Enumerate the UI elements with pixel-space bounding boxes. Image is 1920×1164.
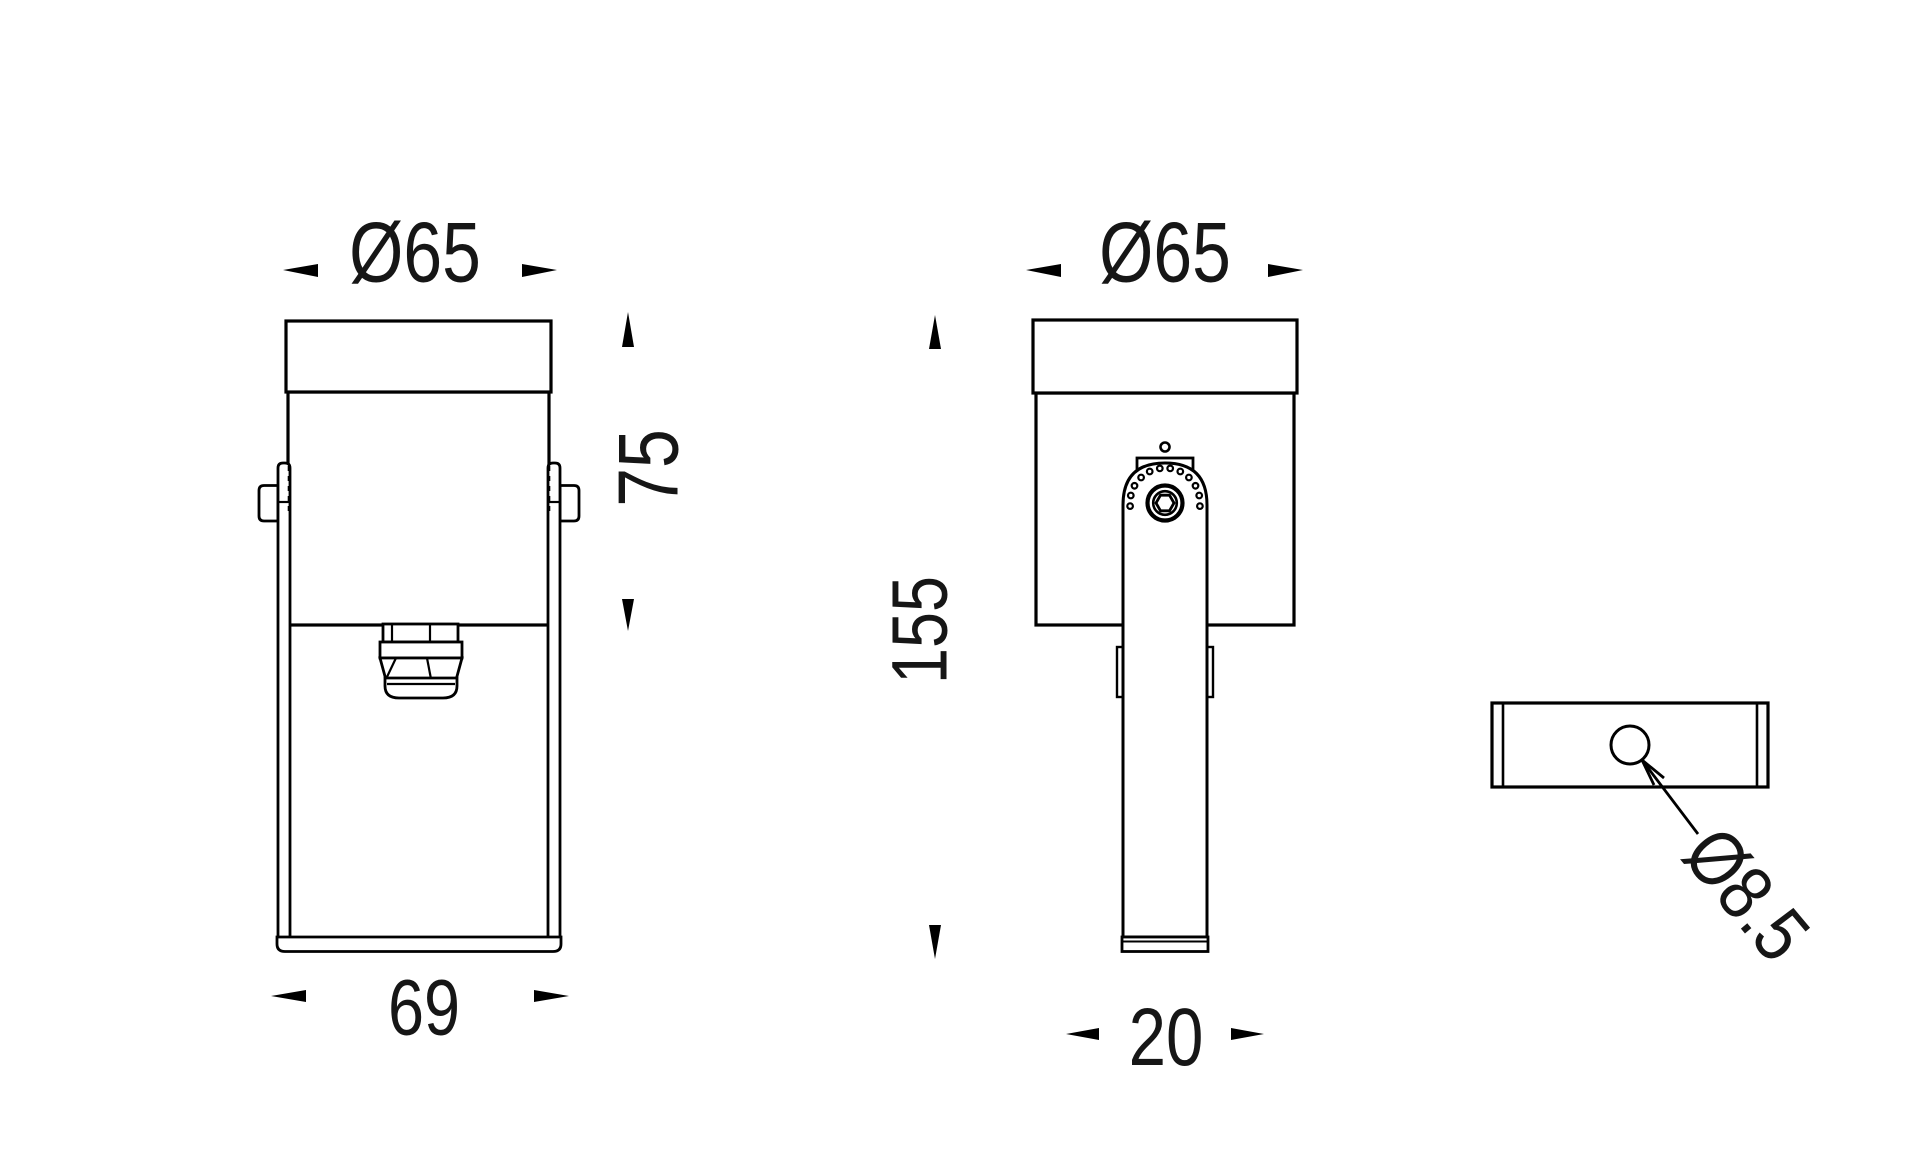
arrow-front-dia-left [283,264,318,277]
front-bracket-arm-right [548,463,560,940]
front-base-width-label: 69 [388,968,460,1047]
front-knob-right [560,486,579,522]
arrow-side-height-up [929,315,941,349]
gland-neck [383,624,458,642]
arrow-side-height-down [929,925,941,959]
base-plate-view [1492,703,1768,834]
front-base-plate [277,937,561,952]
arrow-front-base-right [534,990,569,1002]
arrow-side-depth-left [1066,1028,1099,1040]
arrow-front-height-down [622,599,634,631]
arrow-front-base-left [271,990,306,1002]
arrow-side-depth-right [1231,1028,1264,1040]
side-head-cap [1033,320,1297,393]
gland-flange [380,642,462,658]
front-head-height-label: 75 [607,429,692,507]
arrow-front-height-up [622,312,634,347]
arrow-side-dia-right [1268,264,1303,277]
front-cable-gland [380,624,462,698]
gland-cap [385,678,457,698]
front-head-cap [286,321,551,392]
side-foot [1122,937,1208,952]
side-view [1033,320,1297,952]
drawing-canvas: Ø65 75 69 Ø65 155 20 Ø8.5 [0,0,1920,1164]
arrow-front-dia-right [522,264,557,277]
side-head-diameter-label: Ø65 [1099,211,1231,296]
base-plate-outline [1492,703,1768,787]
side-overall-height-label: 155 [880,576,959,684]
front-bracket-arm-left [278,463,290,940]
arrow-side-dia-left [1026,264,1061,277]
front-view [259,321,579,952]
side-bracket-arm [1123,463,1207,937]
front-head-diameter-label: Ø65 [349,211,481,296]
front-body [288,392,549,625]
side-bracket-depth-label: 20 [1129,997,1204,1079]
front-knob-left [259,486,278,522]
side-pivot-pin [1161,443,1170,452]
